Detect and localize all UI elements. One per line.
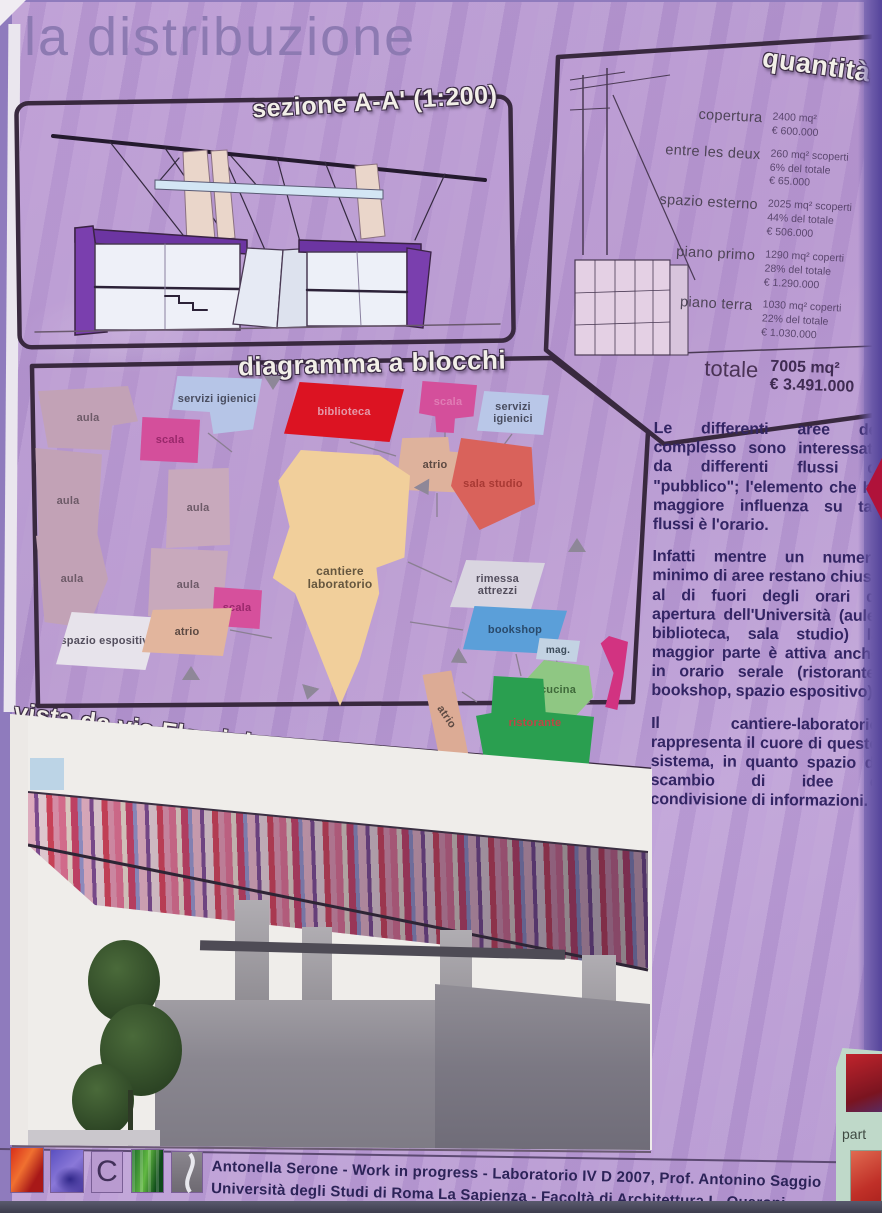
block-label: scala <box>434 396 463 408</box>
logo-letter-c: C <box>91 1151 123 1193</box>
quantita-row: entre les deux 260 mq² scoperti6% del to… <box>641 141 878 195</box>
block-label: bookshop <box>488 624 542 636</box>
page-title: la distribuzione <box>24 6 416 68</box>
logo-abstract-red <box>10 1147 44 1193</box>
quantita-row: copertura 2400 mq²€ 600.000 <box>644 104 880 144</box>
block-scala-2: scala <box>419 381 477 433</box>
flow-arrow <box>264 376 282 390</box>
poster-photo: { "title": "la distribuzione", "section"… <box>0 0 882 1213</box>
quantita-row: piano primo 1290 mq² coperti28% del tota… <box>636 242 873 296</box>
block-label: aula <box>77 412 100 424</box>
poster-left-edge <box>4 24 21 712</box>
block-label: spazio espositivo <box>60 635 155 647</box>
block-rimessa-attrezzi: rimessa attrezzi <box>450 560 545 610</box>
neighbor-image <box>850 1150 882 1210</box>
block-label: aula <box>61 573 84 585</box>
block-spazio-espositivo: spazio espositivo <box>56 612 160 670</box>
block-scala-4 <box>590 636 628 710</box>
block-aula-3: aula <box>166 468 230 548</box>
block-label: aula <box>187 502 210 514</box>
logo-c-glyph: C <box>96 1155 118 1189</box>
block-label: rimessa attrezzi <box>468 573 528 597</box>
vista-render <box>10 712 652 1152</box>
block-label: servizi igienici <box>477 401 549 425</box>
quantita-label: quantità <box>760 43 872 89</box>
poster-corner <box>0 0 26 26</box>
totale-label: totale <box>667 354 758 393</box>
block-label: aula <box>177 579 200 591</box>
neighbor-image <box>846 1054 882 1112</box>
section-label: sezione A-A' (1:200) <box>251 81 498 125</box>
block-label: atrio <box>423 459 448 471</box>
quantita-table: copertura 2400 mq²€ 600.000 entre les de… <box>632 104 879 355</box>
river-curve-glyph <box>172 1152 204 1194</box>
quantita-row-label: spazio esterno <box>638 191 758 239</box>
block-label: mag. <box>546 645 570 656</box>
render-sky-patch <box>30 758 64 790</box>
quantita-row: piano terra 1030 mq² coperti22% del tota… <box>633 292 870 346</box>
flow-arrow <box>182 666 200 680</box>
render-wall-right <box>435 984 650 1152</box>
description-paragraph: Le differenti aree del complesso sono in… <box>653 419 882 536</box>
totale-cost: € 3.491.000 <box>769 376 880 398</box>
description-column: Le differenti aree del complesso sono in… <box>650 419 882 825</box>
block-mag: mag. <box>536 638 580 662</box>
neighbor-partial-text: part <box>842 1126 866 1142</box>
block-label: atrio <box>175 626 200 638</box>
block-aula-1: aula <box>38 386 138 450</box>
quantita-row: spazio esterno 2025 mq² scoperti44% del … <box>638 191 875 245</box>
description-paragraph: Il cantiere-laboratorio rappresenta il c… <box>650 714 879 812</box>
block-cantiere-laboratorio: cantiere laboratorio <box>270 450 410 706</box>
render-margin <box>10 712 28 1152</box>
block-label: cantiere laboratorio <box>300 565 380 591</box>
block-label: ristorante <box>509 717 562 729</box>
block-scala-1: scala <box>140 417 200 463</box>
block-label: sala studio <box>463 478 523 490</box>
logo-abstract-green <box>131 1149 164 1193</box>
block-label: atrio <box>434 704 458 731</box>
logo-abstract-blue <box>50 1149 84 1193</box>
quantita-row-label: piano primo <box>636 242 756 290</box>
block-label: scala <box>156 434 185 446</box>
block-label: aula <box>57 495 80 507</box>
flow-arrow <box>446 648 467 671</box>
block-label: servizi igienici <box>178 393 256 405</box>
flow-arrow <box>298 684 319 702</box>
quantita-row-label: copertura <box>644 104 763 138</box>
neighbor-poster: part <box>836 1048 882 1213</box>
quantita-totale: totale 7005 mq² € 3.491.000 <box>667 354 880 397</box>
block-servizi-igienici-2: servizi igienici <box>477 391 549 435</box>
block-atrio-2: atrio <box>142 608 232 656</box>
block-biblioteca: biblioteca <box>284 382 404 442</box>
description-paragraph: Infatti mentre un numero minimo di aree … <box>651 547 880 702</box>
section-drawing <box>35 136 500 335</box>
block-label: cucina <box>540 684 576 696</box>
render-wall-left <box>155 1000 435 1150</box>
block-label: biblioteca <box>317 406 370 418</box>
block-sala-studio: sala studio <box>451 438 535 530</box>
quantita-row-label: entre les deux <box>641 141 761 189</box>
logo-river-curve <box>171 1151 203 1193</box>
tree <box>72 1064 134 1136</box>
section-panel-outline <box>16 96 513 347</box>
quantita-row-label: piano terra <box>633 292 753 340</box>
flow-arrow <box>568 538 586 552</box>
